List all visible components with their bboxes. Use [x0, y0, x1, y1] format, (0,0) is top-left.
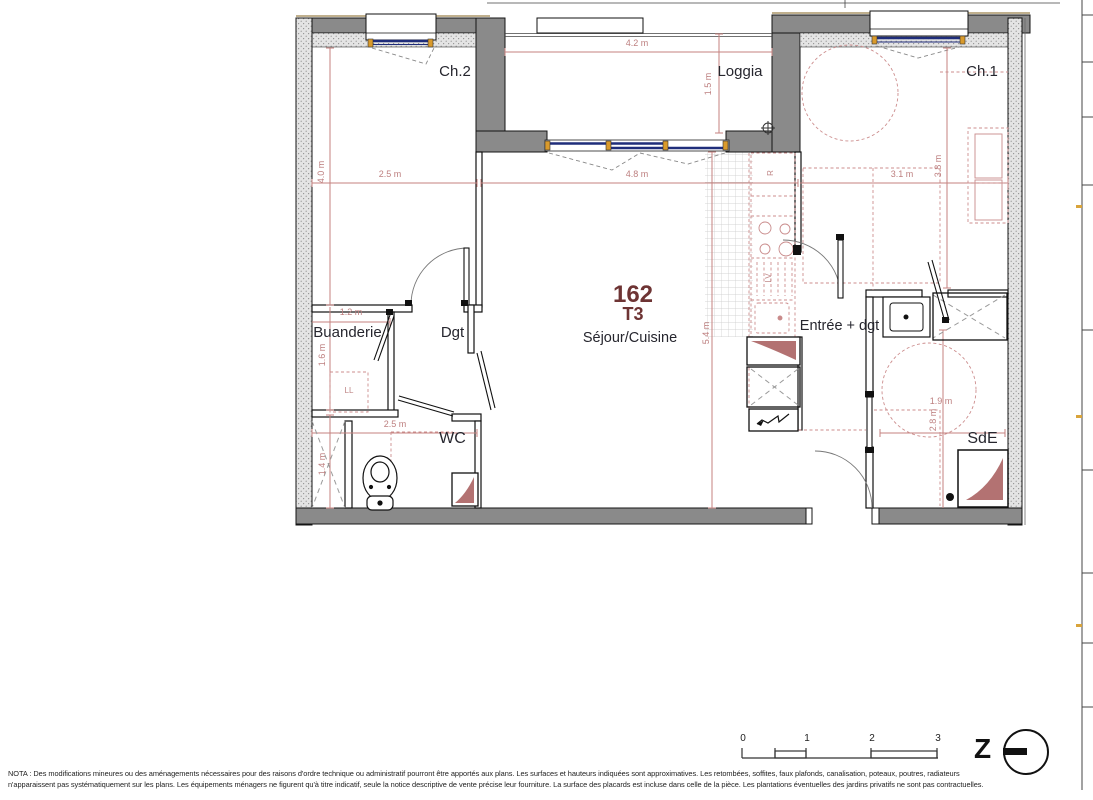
dim-sde-depth: 2.8 m — [927, 400, 939, 440]
window-ch2 — [366, 14, 436, 47]
footer-note-line1: NOTA : Des modifications mineures ou des… — [8, 769, 960, 778]
dim-loggia-depth: 1.5 m — [702, 64, 714, 104]
sink-icon — [883, 297, 930, 337]
kitchen-sink-faucet — [778, 316, 782, 320]
dim-wc-depth: 1.4 m — [316, 444, 328, 484]
dimension-lines — [312, 34, 1008, 508]
shower-icon — [946, 450, 1008, 507]
scale-bar — [742, 748, 938, 758]
dim-ch2-width: 2.5 m — [370, 169, 410, 179]
scale-tick-3: 3 — [932, 733, 944, 744]
floorplan-sheet: Ch.2 Loggia Ch.1 Buanderie Dgt 162 T3 Sé… — [0, 0, 1093, 800]
bay-window-sejour — [545, 140, 729, 151]
closet-box — [747, 367, 800, 407]
room-label-ch2: Ch.2 — [430, 63, 480, 80]
room-label-sde: SdE — [960, 430, 1005, 448]
scale-tick-1: 1 — [801, 733, 813, 744]
room-label-dgt: Dgt — [430, 324, 475, 341]
washing-machine-label: LL — [337, 386, 361, 395]
scale-tick-2: 2 — [866, 733, 878, 744]
wc-placard-icon — [452, 473, 478, 506]
scale-tick-0: 0 — [737, 733, 749, 744]
fixtures — [363, 121, 1008, 510]
dim-wc-width: 2.5 m — [375, 419, 415, 429]
dim-sejour-depth: 5.4 m — [700, 313, 712, 353]
dim-ch2-depth: 4.0 m — [315, 152, 327, 192]
drain-dot — [946, 493, 954, 501]
north-letter: Z — [965, 733, 1000, 765]
dim-sejour-width: 4.8 m — [614, 169, 660, 179]
exterior-walls — [296, 15, 1030, 525]
hob-icon — [759, 222, 793, 256]
dim-buanderie-width: 1.2 m — [331, 307, 371, 317]
north-arrow-bar — [1003, 748, 1027, 755]
dim-buanderie-depth: 1.6 m — [316, 335, 328, 375]
room-label-wc: WC — [430, 430, 475, 448]
room-label-sejour-cuisine: Séjour/Cuisine — [575, 330, 685, 346]
footer-note-line2: n'apparaissent pas systématiquement sur … — [8, 780, 983, 789]
sheet-edge-markers — [1076, 205, 1082, 627]
window-ch1 — [870, 11, 968, 44]
toilet-icon — [363, 456, 397, 510]
room-label-loggia: Loggia — [710, 63, 770, 80]
room-label-entree: Entrée + dgt — [797, 318, 882, 334]
dim-ch1-depth: 3.8 m — [932, 146, 944, 186]
room-label-ch1: Ch.1 — [957, 63, 1007, 80]
dim-loggia-width: 4.2 m — [614, 38, 660, 48]
loggia-railing — [505, 18, 772, 37]
dim-ch1-width: 3.1 m — [879, 169, 925, 179]
unit-type: T3 — [603, 304, 663, 325]
electrical-panel-icon — [749, 409, 798, 431]
dishwasher-label: LV — [763, 266, 775, 290]
doors — [374, 234, 949, 508]
fridge-label: R — [765, 161, 777, 185]
